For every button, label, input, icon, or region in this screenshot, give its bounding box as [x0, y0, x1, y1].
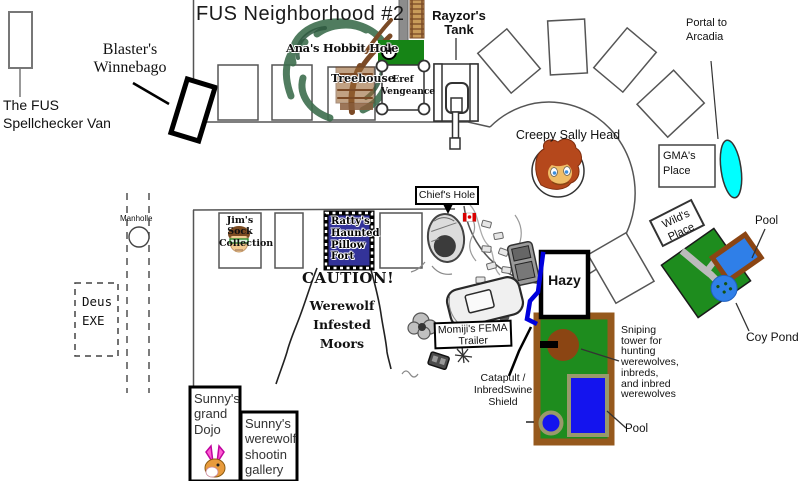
lower-pool	[569, 376, 607, 435]
jims-box	[219, 213, 261, 268]
hot-tub	[541, 413, 562, 434]
coy-pond-pointer	[736, 303, 749, 331]
junk-pile-sketch	[470, 205, 540, 286]
canada-flag-icon	[463, 213, 476, 222]
gmas-place-box	[659, 145, 715, 187]
sunny-boxes	[190, 387, 297, 481]
neighborhood-map: FUS Neighborhood #2 The FUS Spellchecker…	[0, 0, 800, 481]
manhole	[129, 227, 149, 247]
sniper-yard	[526, 316, 626, 442]
momiji-label-box	[435, 321, 512, 349]
moors-squiggles	[276, 268, 391, 384]
map-drawing	[0, 0, 800, 481]
jim-face-icon	[228, 226, 250, 252]
pillow-fort-box	[326, 213, 372, 268]
hazy-box	[541, 252, 588, 317]
pole-and-ladder-drawing	[399, 0, 424, 46]
catapult-pointer	[509, 327, 531, 376]
winnebago-shape	[133, 79, 215, 141]
car-sketch	[428, 352, 450, 370]
sniper-barrel	[540, 341, 558, 348]
wilds-place-box	[650, 200, 704, 246]
ladder	[410, 0, 424, 38]
deus-exe-outline	[75, 283, 118, 356]
treehouse-shape	[336, 67, 374, 110]
spellchecker-van-shape	[9, 12, 32, 97]
eref-vehicle	[377, 61, 430, 115]
portal-shape	[711, 61, 745, 199]
tank-drawing	[434, 38, 478, 149]
dashed-road	[127, 193, 149, 393]
sally-head-drawing	[532, 139, 584, 197]
chiefs-hole-label-box	[416, 187, 478, 204]
star-scratch	[455, 347, 472, 363]
gray-pole	[399, 0, 408, 46]
